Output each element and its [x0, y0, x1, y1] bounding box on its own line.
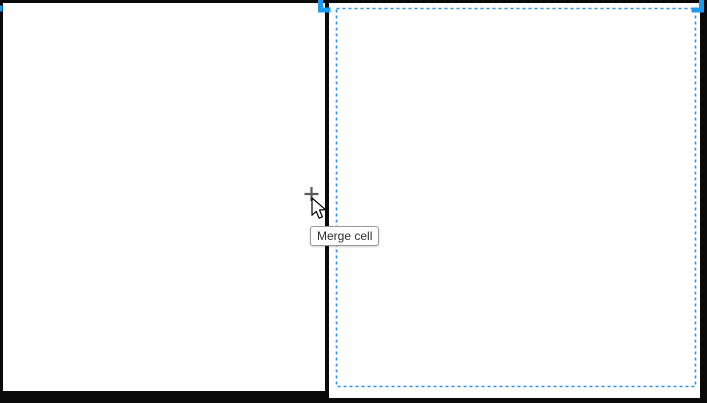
table-border-bottom [0, 398, 707, 403]
table-border-left [0, 0, 3, 403]
table-border-right [700, 0, 707, 403]
document-canvas: Merge cell [0, 0, 707, 403]
merge-cell-tooltip: Merge cell [310, 226, 379, 246]
table-border-top [0, 0, 707, 3]
cell-divider-border[interactable] [325, 0, 329, 403]
table-cell-left[interactable] [3, 3, 325, 391]
table-cell-right-selected[interactable] [329, 3, 700, 398]
